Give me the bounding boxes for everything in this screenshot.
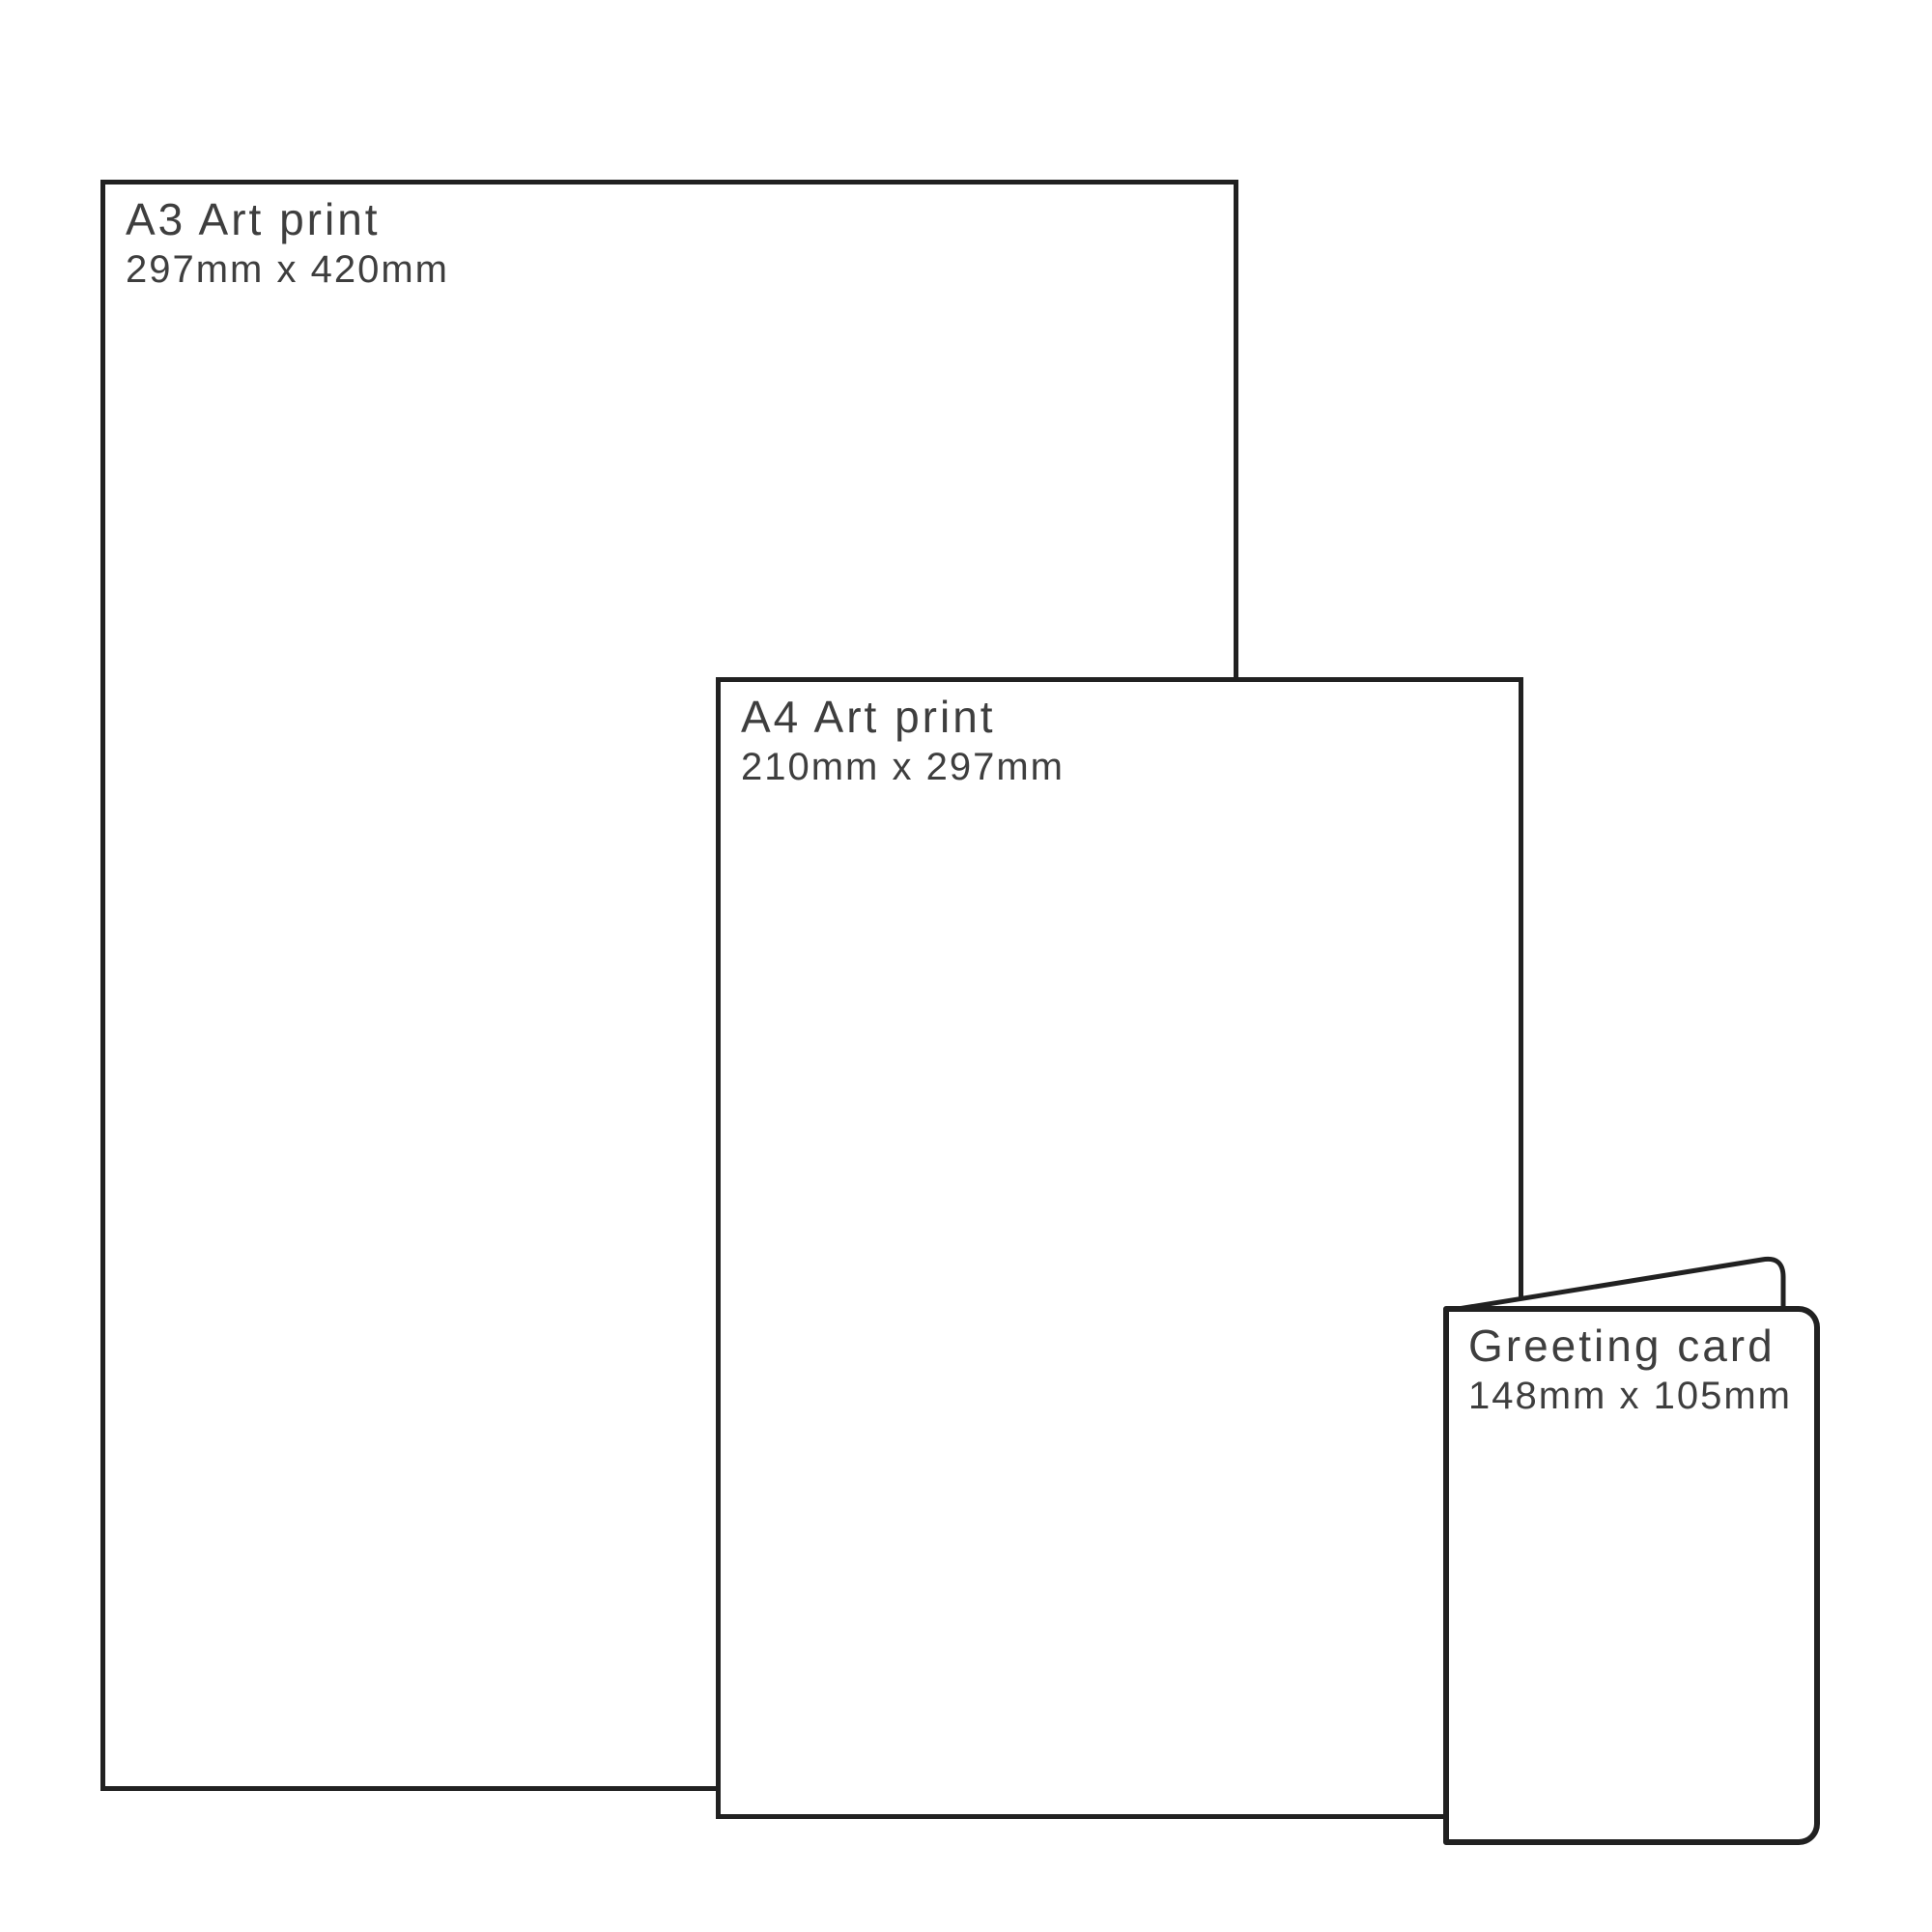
- a4-label: A4 Art print 210mm x 297mm: [721, 682, 1519, 788]
- a3-dimensions: 297mm x 420mm: [126, 248, 1234, 291]
- a4-print-rectangle: A4 Art print 210mm x 297mm: [716, 677, 1523, 1819]
- greeting-card-front: Greeting card 148mm x 105mm: [1443, 1306, 1820, 1845]
- a3-label: A3 Art print 297mm x 420mm: [105, 185, 1234, 291]
- a4-title: A4 Art print: [741, 692, 1519, 743]
- a3-title: A3 Art print: [126, 194, 1234, 245]
- size-comparison-diagram: A3 Art print 297mm x 420mm A4 Art print …: [0, 0, 1932, 1932]
- greeting-card-label: Greeting card 148mm x 105mm: [1449, 1312, 1814, 1417]
- a4-dimensions: 210mm x 297mm: [741, 746, 1519, 788]
- greeting-card-dimensions: 148mm x 105mm: [1468, 1375, 1814, 1417]
- greeting-card-title: Greeting card: [1468, 1321, 1814, 1372]
